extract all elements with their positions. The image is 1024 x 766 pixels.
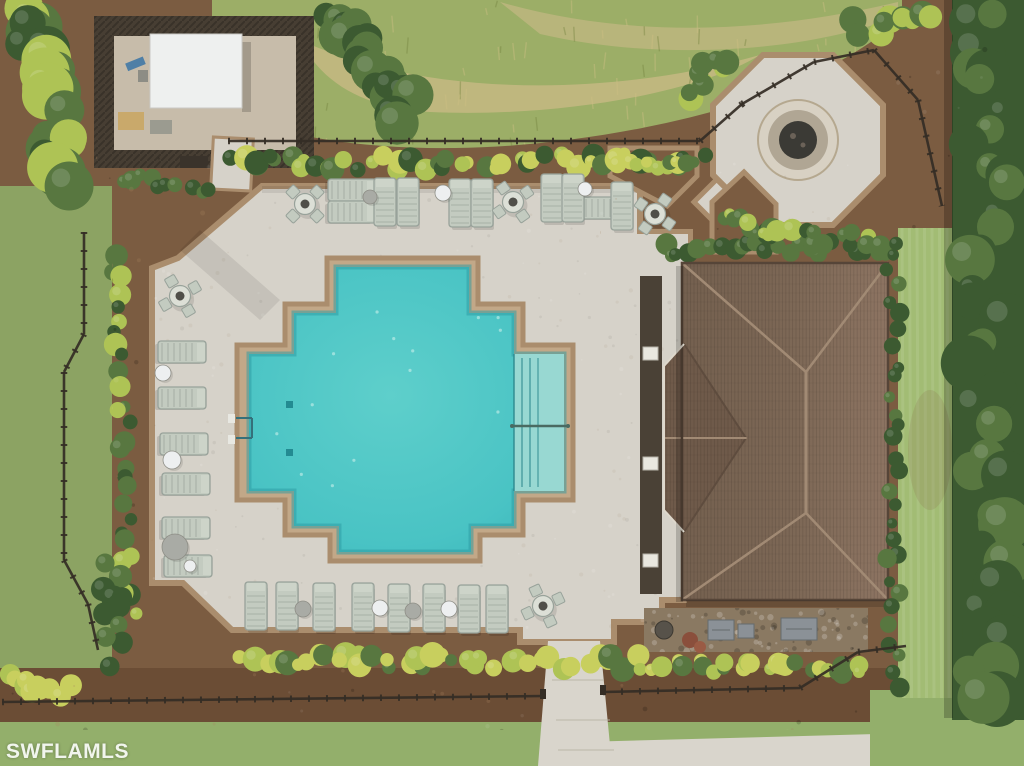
shrub	[890, 678, 910, 698]
shrub	[756, 243, 772, 259]
gate-post	[600, 685, 606, 695]
umbrella-top	[155, 365, 171, 381]
shrub	[641, 157, 652, 168]
shrub	[843, 224, 860, 241]
shrub	[881, 483, 897, 499]
shrub	[125, 513, 137, 525]
handrail-end	[510, 424, 514, 428]
shrub	[110, 402, 126, 418]
shrub	[115, 529, 135, 549]
shrub	[115, 348, 128, 361]
shrub	[853, 666, 865, 678]
shrub	[118, 476, 137, 495]
shrub	[698, 148, 713, 163]
umbrella-top	[435, 185, 451, 201]
shrub	[884, 337, 901, 354]
lounge-chair	[245, 582, 268, 633]
shrub	[889, 498, 902, 511]
shrub	[350, 162, 365, 177]
shrub	[201, 182, 216, 197]
lounge-chair	[159, 473, 210, 496]
shrub	[885, 665, 900, 680]
shrub	[114, 495, 132, 513]
shrub	[114, 636, 132, 654]
shrub	[436, 150, 454, 168]
umbrella-top	[441, 601, 457, 617]
shrub	[490, 154, 511, 175]
shrub	[978, 0, 1007, 28]
lounge-chair	[157, 433, 208, 456]
structure-shadow	[242, 42, 251, 112]
lounge-chair	[449, 179, 472, 230]
shrub	[380, 653, 393, 666]
lounge-chair	[155, 341, 206, 364]
umbrella-top	[163, 451, 181, 469]
equipment-roof	[150, 34, 242, 108]
aerial-pool-photo: SWFLAMLS	[0, 0, 1024, 766]
shrub	[887, 518, 898, 529]
lounge-chair	[471, 179, 494, 230]
shrub	[471, 650, 487, 666]
shrub	[891, 276, 906, 291]
shrub	[360, 645, 382, 667]
shrub	[105, 244, 128, 267]
shrub	[880, 616, 897, 633]
shrub	[672, 656, 692, 676]
shrub	[989, 164, 1024, 200]
clubhouse	[640, 260, 890, 655]
column-cap	[643, 554, 658, 567]
side-table	[295, 601, 311, 617]
equipment-enclosure	[94, 16, 314, 191]
shrub	[96, 627, 116, 647]
left-grass-strip	[0, 186, 112, 680]
shrub	[651, 656, 672, 677]
ladder-pad	[228, 435, 235, 444]
shrub	[167, 177, 182, 192]
shrub	[884, 598, 900, 614]
lounge-chair	[397, 178, 420, 229]
ladder-pad	[228, 414, 235, 423]
bottom-ground	[0, 668, 1024, 766]
lounge-chair	[374, 178, 397, 229]
shrub	[870, 235, 890, 255]
shrub	[263, 149, 278, 164]
scene-canvas	[0, 0, 1024, 766]
shrub	[375, 101, 418, 144]
shrub	[627, 644, 649, 666]
shrub	[846, 23, 870, 47]
shrub	[884, 576, 895, 587]
shrub	[877, 549, 896, 568]
shrub	[445, 654, 457, 666]
shrub	[100, 657, 120, 677]
lounge-chair	[611, 182, 634, 233]
enclosure-gate	[180, 156, 208, 168]
umbrella-top	[372, 600, 388, 616]
shrub	[110, 438, 130, 458]
shrub	[884, 427, 903, 446]
pool-drain	[286, 449, 293, 456]
gray-equipment	[138, 70, 148, 82]
lounge-chair	[458, 585, 481, 636]
building-south-shadow	[686, 600, 886, 607]
shrub	[485, 660, 502, 677]
equipment-cylinder	[655, 621, 673, 639]
shrub	[919, 5, 942, 28]
shrub	[884, 391, 895, 402]
shrub	[812, 234, 833, 255]
umbrella-top	[184, 560, 196, 572]
shrub	[957, 672, 1009, 724]
lounge-chair	[541, 174, 564, 225]
shrub	[887, 249, 899, 261]
shrub	[313, 645, 334, 666]
shrub	[886, 531, 902, 547]
shrub	[335, 151, 352, 168]
umbrella-top	[578, 182, 592, 196]
shrub	[890, 303, 909, 322]
pool-drain	[286, 401, 293, 408]
shrub	[874, 12, 894, 32]
side-table	[363, 190, 377, 204]
tan-crate	[118, 112, 144, 130]
shrub	[976, 406, 1012, 442]
shrub	[889, 237, 903, 251]
column-cap	[643, 347, 658, 360]
shrub	[762, 229, 775, 242]
lounge-chair	[313, 583, 336, 634]
shrub	[888, 368, 902, 382]
shrub	[519, 654, 537, 672]
furled-umbrella	[301, 200, 310, 209]
shrub	[130, 607, 142, 619]
shrub	[786, 654, 803, 671]
gate-post	[540, 689, 546, 699]
building-west-shadow	[676, 266, 683, 602]
handrail-end	[566, 424, 570, 428]
shrub	[890, 462, 908, 480]
shrub	[880, 263, 893, 276]
gray-crate	[150, 120, 172, 134]
lounge-chair	[352, 583, 375, 634]
shrub	[634, 663, 647, 676]
firepit-coals	[790, 133, 796, 139]
shrub	[112, 300, 125, 313]
shrub	[332, 652, 347, 667]
shrub	[123, 415, 138, 430]
shrub	[110, 376, 131, 397]
shrub	[714, 50, 739, 75]
side-table	[162, 534, 188, 560]
lounge-chair	[562, 174, 585, 225]
shrub	[561, 657, 580, 676]
lounge-chair	[486, 585, 509, 636]
firepit-bowl	[779, 121, 817, 159]
shrub	[45, 162, 94, 211]
lounge-chair	[155, 387, 206, 410]
column-cap	[643, 457, 658, 470]
shrub	[110, 265, 131, 286]
shrub	[535, 146, 553, 164]
shrub	[964, 64, 994, 94]
mls-watermark: SWFLAMLS	[6, 740, 129, 764]
shrub	[688, 156, 699, 167]
red-plant	[694, 641, 706, 653]
shrub	[740, 654, 759, 673]
west-planting-strip	[640, 276, 662, 594]
shrub	[60, 674, 82, 696]
shrub	[889, 320, 906, 337]
side-table	[405, 603, 421, 619]
firepit-coals	[801, 143, 806, 148]
shrub	[455, 156, 471, 172]
shrub	[715, 653, 733, 671]
